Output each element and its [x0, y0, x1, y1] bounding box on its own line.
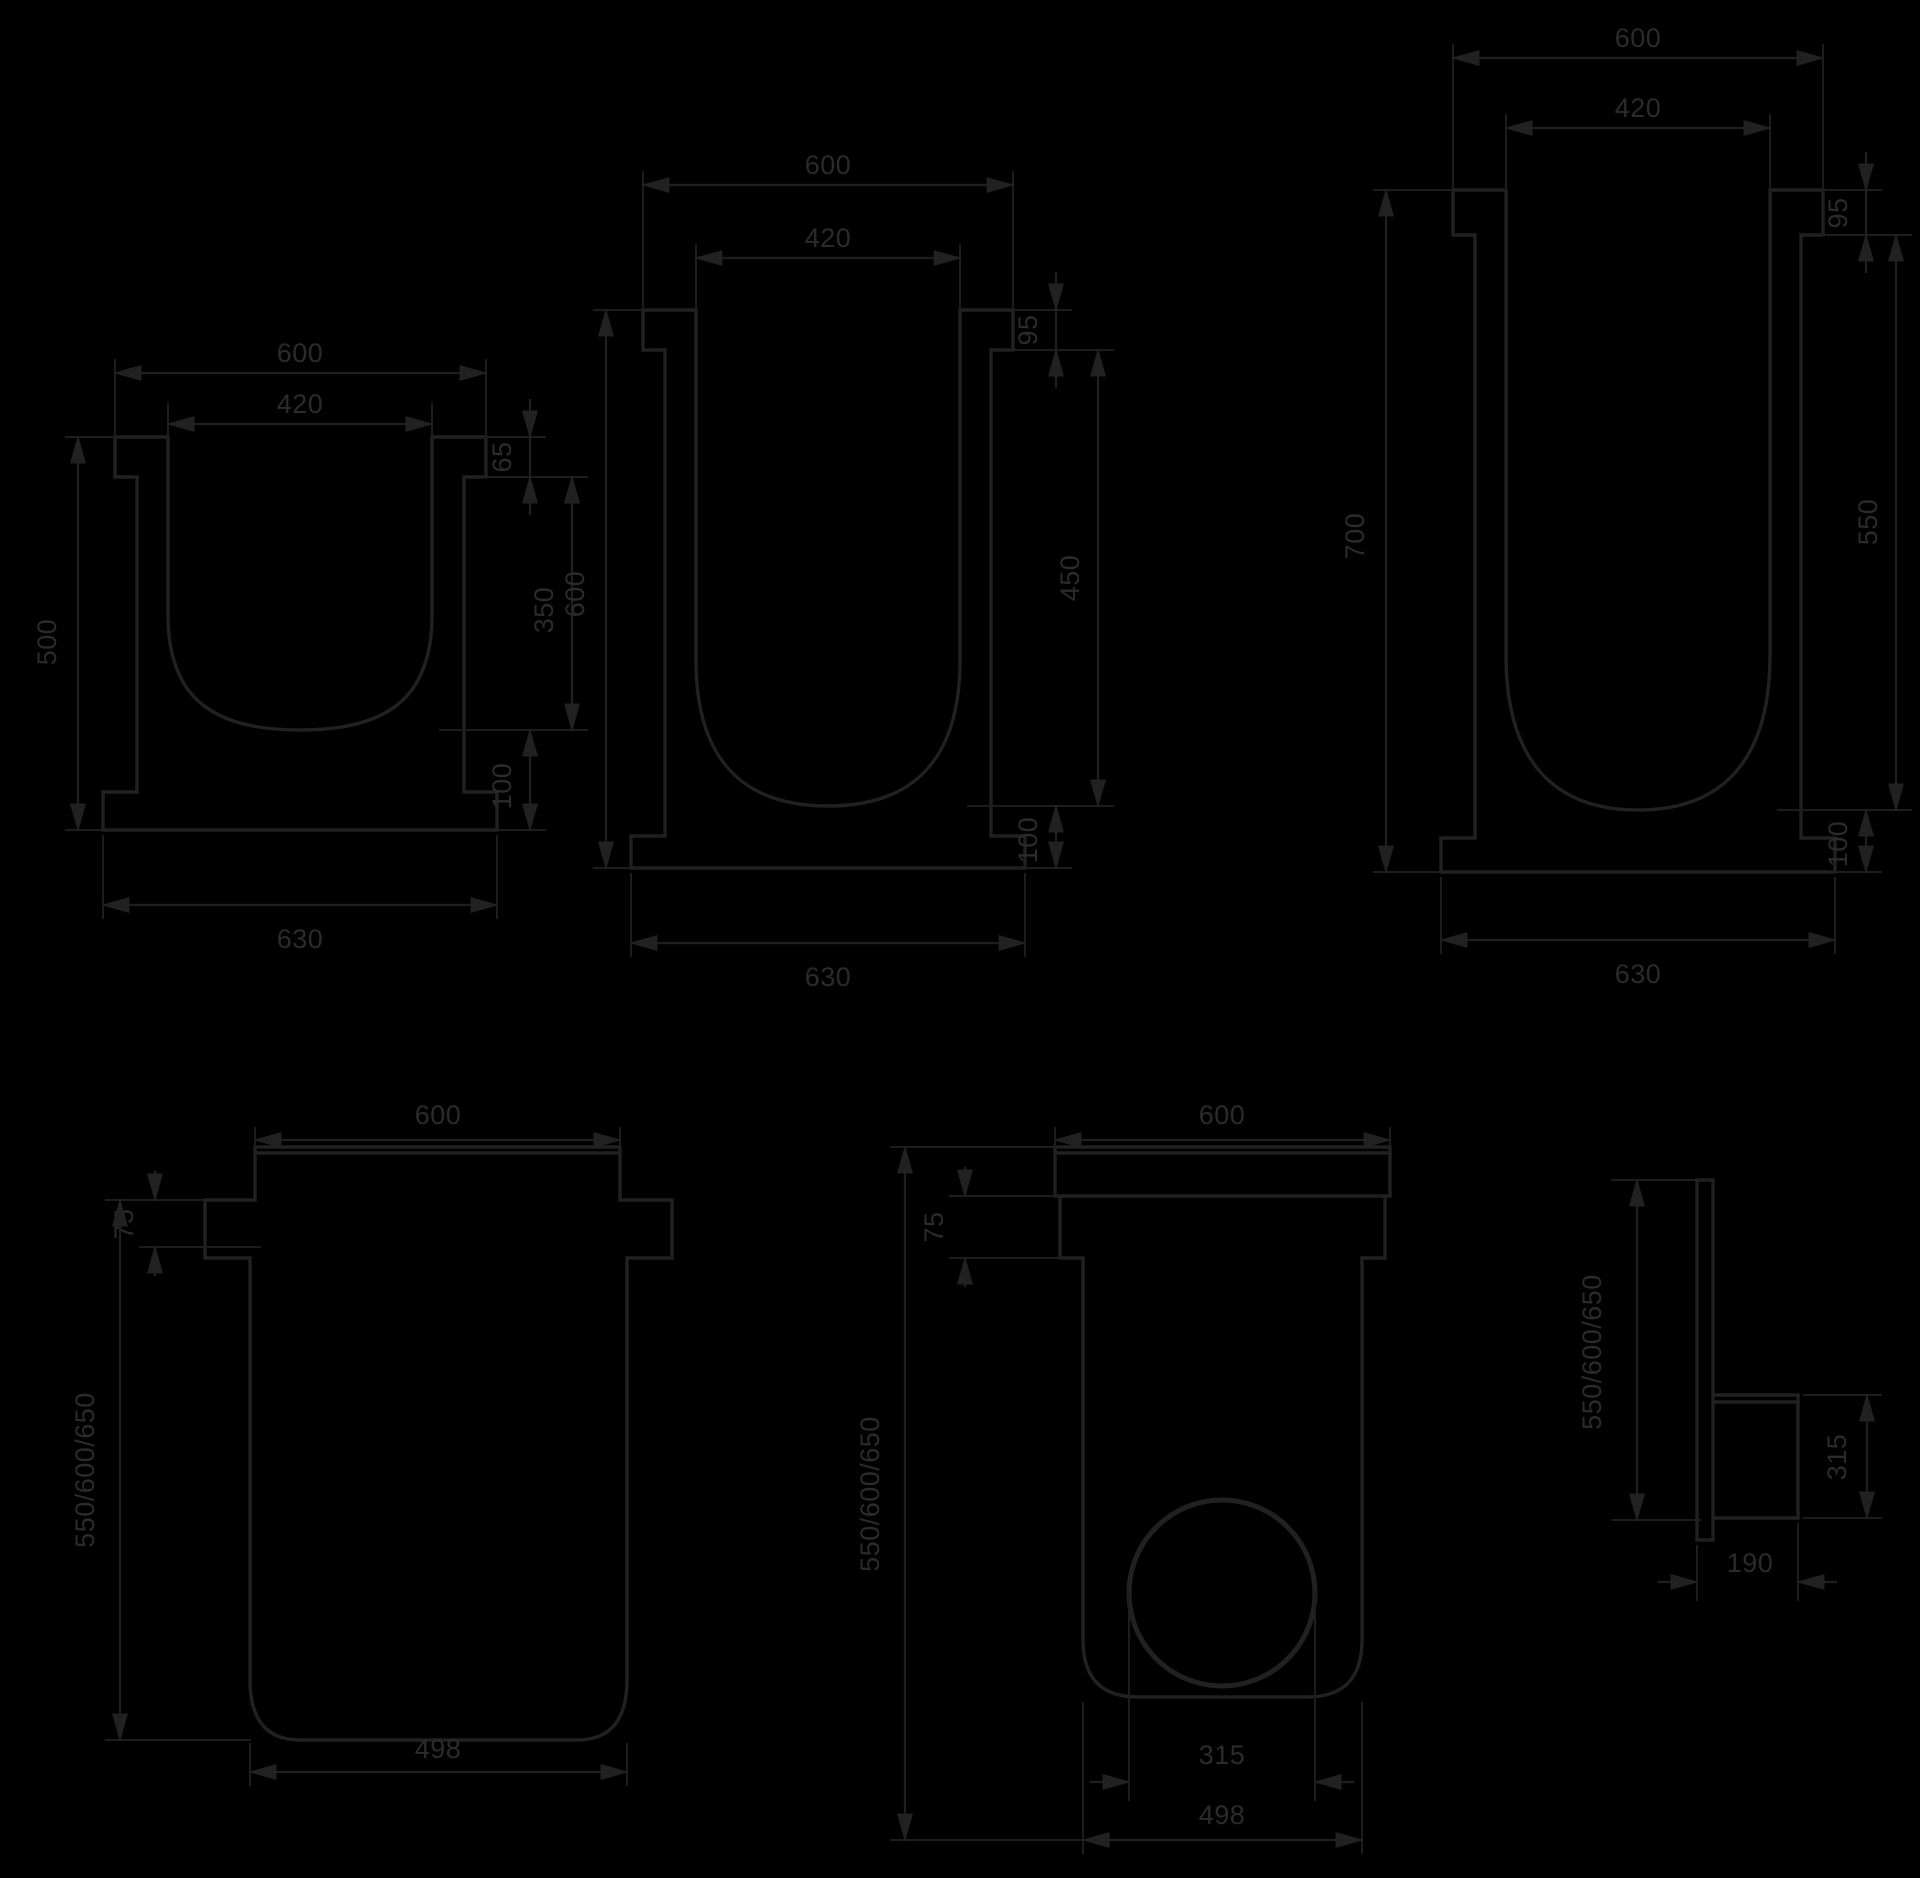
dim-label-rail: 65	[487, 441, 517, 472]
dim-label-bottom-width: 498	[415, 1734, 462, 1764]
channel-3-outline	[1441, 190, 1835, 872]
diagram-outfall-outlet: 600 75 550/600/650 315 498	[855, 1100, 1390, 1853]
dim-label-top-width: 600	[1199, 1100, 1246, 1130]
diagram-end-wall-side: 550/600/650 315 190	[1577, 1180, 1881, 1600]
end-wall-outline	[1697, 1180, 1798, 1540]
extension-lines	[1506, 115, 1770, 190]
dim-label-bottom-width: 630	[1615, 959, 1662, 989]
dim-label-outlet-height: 315	[1822, 1434, 1852, 1481]
dim-label-rim: 75	[919, 1211, 949, 1242]
dim-label-top-width: 600	[415, 1100, 462, 1130]
dim-label-heights: 550/600/650	[855, 1416, 885, 1572]
dim-label-base: 100	[1013, 817, 1043, 864]
diagram-channel-type-2: 600 420 600 95 450 100 630	[560, 150, 1113, 992]
dim-label-height: 700	[1340, 513, 1370, 560]
extension-lines	[1055, 1128, 1390, 1147]
diagram-outfall-closed: 600 75 550/600/650 498	[70, 1100, 672, 1785]
dim-label-height: 500	[32, 619, 62, 666]
dim-label-base: 100	[487, 763, 517, 810]
dimension-drawings-canvas: 600 420 500 65 350 100 630 600 42	[0, 0, 1920, 1878]
dim-label-top-width: 600	[277, 338, 324, 368]
dim-label-heights: 550/600/650	[70, 1392, 100, 1548]
dim-label-outlet-depth: 190	[1727, 1548, 1774, 1578]
extension-lines	[1083, 1703, 1362, 1853]
extension-lines	[66, 437, 115, 830]
outfall-outlet-outline	[1055, 1147, 1390, 1697]
dim-label-pipe: 315	[1199, 1740, 1246, 1770]
dim-label-height: 600	[560, 571, 590, 618]
dim-label-rim: 75	[109, 1208, 139, 1239]
dim-label-rail: 95	[1013, 314, 1043, 345]
dim-label-inner-width: 420	[277, 389, 324, 419]
channel-2-outline	[631, 310, 1025, 868]
diagram-channel-type-3: 600 420 700 95 550 100 630	[1340, 23, 1911, 989]
extension-lines	[950, 1196, 1060, 1258]
extension-lines	[891, 1147, 1083, 1840]
dim-label-bottom-width: 498	[1199, 1800, 1246, 1830]
channel-1-outline	[103, 437, 497, 830]
extension-lines	[1778, 235, 1911, 810]
dim-label-depth: 550	[1853, 499, 1883, 546]
extension-lines	[594, 310, 643, 868]
dim-label-bottom-width: 630	[277, 924, 324, 954]
dim-label-top-width: 600	[805, 150, 852, 180]
dim-label-base: 100	[1823, 821, 1853, 868]
extension-lines	[696, 245, 960, 310]
diagram-channel-type-1: 600 420 500 65 350 100 630	[32, 338, 587, 954]
extension-lines	[1441, 878, 1835, 953]
dim-label-inner-width: 420	[805, 223, 852, 253]
dim-label-rail: 95	[1823, 197, 1853, 228]
outfall-closed-outline	[205, 1147, 672, 1740]
dim-label-inner-width: 420	[1615, 93, 1662, 123]
technical-drawing-sheet: 600 420 500 65 350 100 630 600 42	[0, 0, 1920, 1878]
extension-lines	[255, 1128, 620, 1147]
extension-lines	[1612, 1180, 1700, 1520]
extension-lines	[106, 1200, 250, 1740]
dim-label-bottom-width: 630	[805, 962, 852, 992]
outlet-pipe-circle	[1129, 1500, 1315, 1686]
dim-label-heights: 550/600/650	[1577, 1274, 1607, 1430]
dim-label-top-width: 600	[1615, 23, 1662, 53]
dim-label-depth: 350	[529, 587, 559, 634]
extension-lines	[140, 1200, 260, 1247]
dim-label-depth: 450	[1055, 555, 1085, 602]
